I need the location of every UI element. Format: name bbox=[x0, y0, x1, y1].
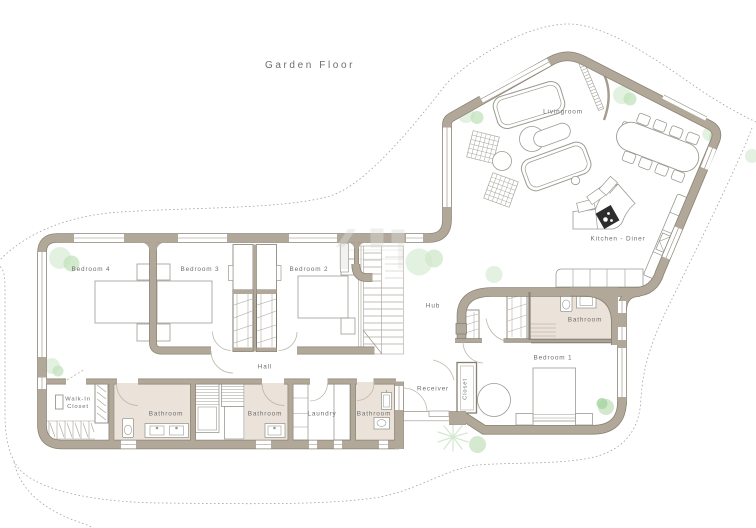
svg-text:Bedroom 4: Bedroom 4 bbox=[72, 266, 111, 273]
svg-text:Closet: Closet bbox=[463, 378, 469, 400]
svg-text:Receiver: Receiver bbox=[417, 386, 449, 393]
svg-text:Hall: Hall bbox=[258, 364, 272, 371]
svg-text:Bedroom 2: Bedroom 2 bbox=[290, 266, 329, 273]
svg-text:Bathroom: Bathroom bbox=[248, 411, 283, 418]
svg-text:Walk-In: Walk-In bbox=[65, 397, 91, 403]
svg-text:Bathroom: Bathroom bbox=[568, 317, 603, 324]
svg-text:Livingroom: Livingroom bbox=[543, 109, 583, 116]
svg-text:Laundry: Laundry bbox=[307, 411, 336, 418]
svg-text:Bathroom: Bathroom bbox=[149, 411, 184, 418]
svg-text:Garden Floor: Garden Floor bbox=[265, 60, 355, 71]
svg-text:Closet: Closet bbox=[67, 404, 89, 410]
svg-text:Bedroom 3: Bedroom 3 bbox=[181, 266, 220, 273]
svg-text:Bedroom 1: Bedroom 1 bbox=[534, 355, 573, 362]
svg-text:Bathroom: Bathroom bbox=[357, 411, 392, 418]
svg-text:Kitchen - Diner: Kitchen - Diner bbox=[590, 236, 645, 243]
svg-text:Hub: Hub bbox=[426, 303, 440, 310]
